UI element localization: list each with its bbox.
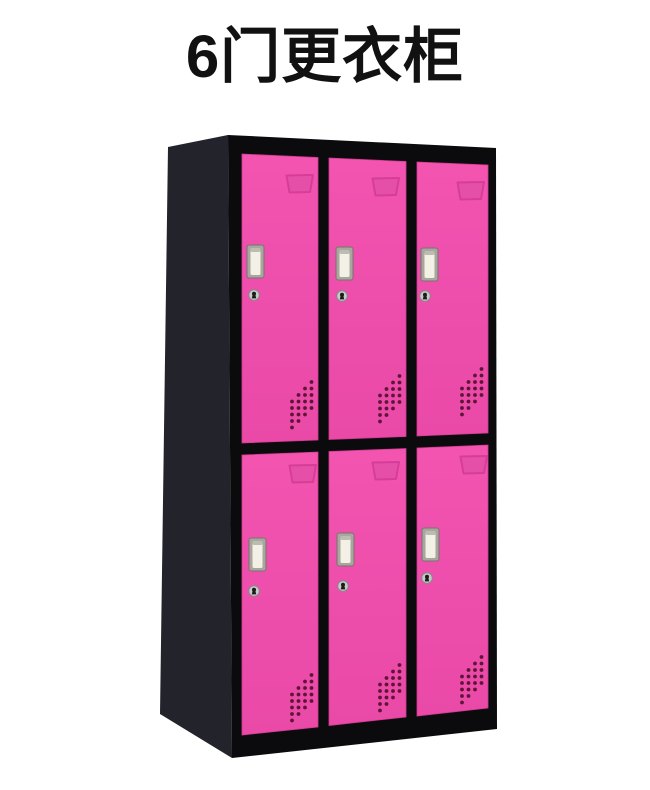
label-card-holder <box>461 456 488 474</box>
label-card-holder <box>373 178 400 196</box>
door-handle <box>336 247 353 280</box>
keyhole-lock-icon <box>338 581 349 592</box>
locker-door-row1-col3 <box>417 162 488 436</box>
keyhole-lock-icon <box>337 291 348 302</box>
keyhole-lock-icon <box>422 573 433 584</box>
label-card-holder <box>290 465 317 483</box>
cabinet-side-panel <box>160 135 232 758</box>
door-handle <box>422 528 439 561</box>
locker-door-row1-col2 <box>329 158 406 440</box>
door-handle <box>337 533 354 566</box>
label-card-holder <box>373 462 400 480</box>
keyhole-lock-icon <box>420 291 431 302</box>
label-card-holder <box>458 182 485 200</box>
cabinet-body <box>160 135 497 758</box>
locker-door-row2-col1 <box>242 452 318 735</box>
locker-door-row1-col1 <box>242 154 318 443</box>
keyhole-lock-icon <box>249 586 260 597</box>
keyhole-lock-icon <box>249 290 260 301</box>
door-handle <box>249 538 266 571</box>
door-handle <box>421 248 438 281</box>
locker-door-row2-col3 <box>417 445 488 716</box>
door-handle <box>247 245 264 278</box>
locker-door-row2-col2 <box>329 449 406 726</box>
locker-product-image <box>0 0 650 790</box>
label-card-holder <box>287 175 314 193</box>
